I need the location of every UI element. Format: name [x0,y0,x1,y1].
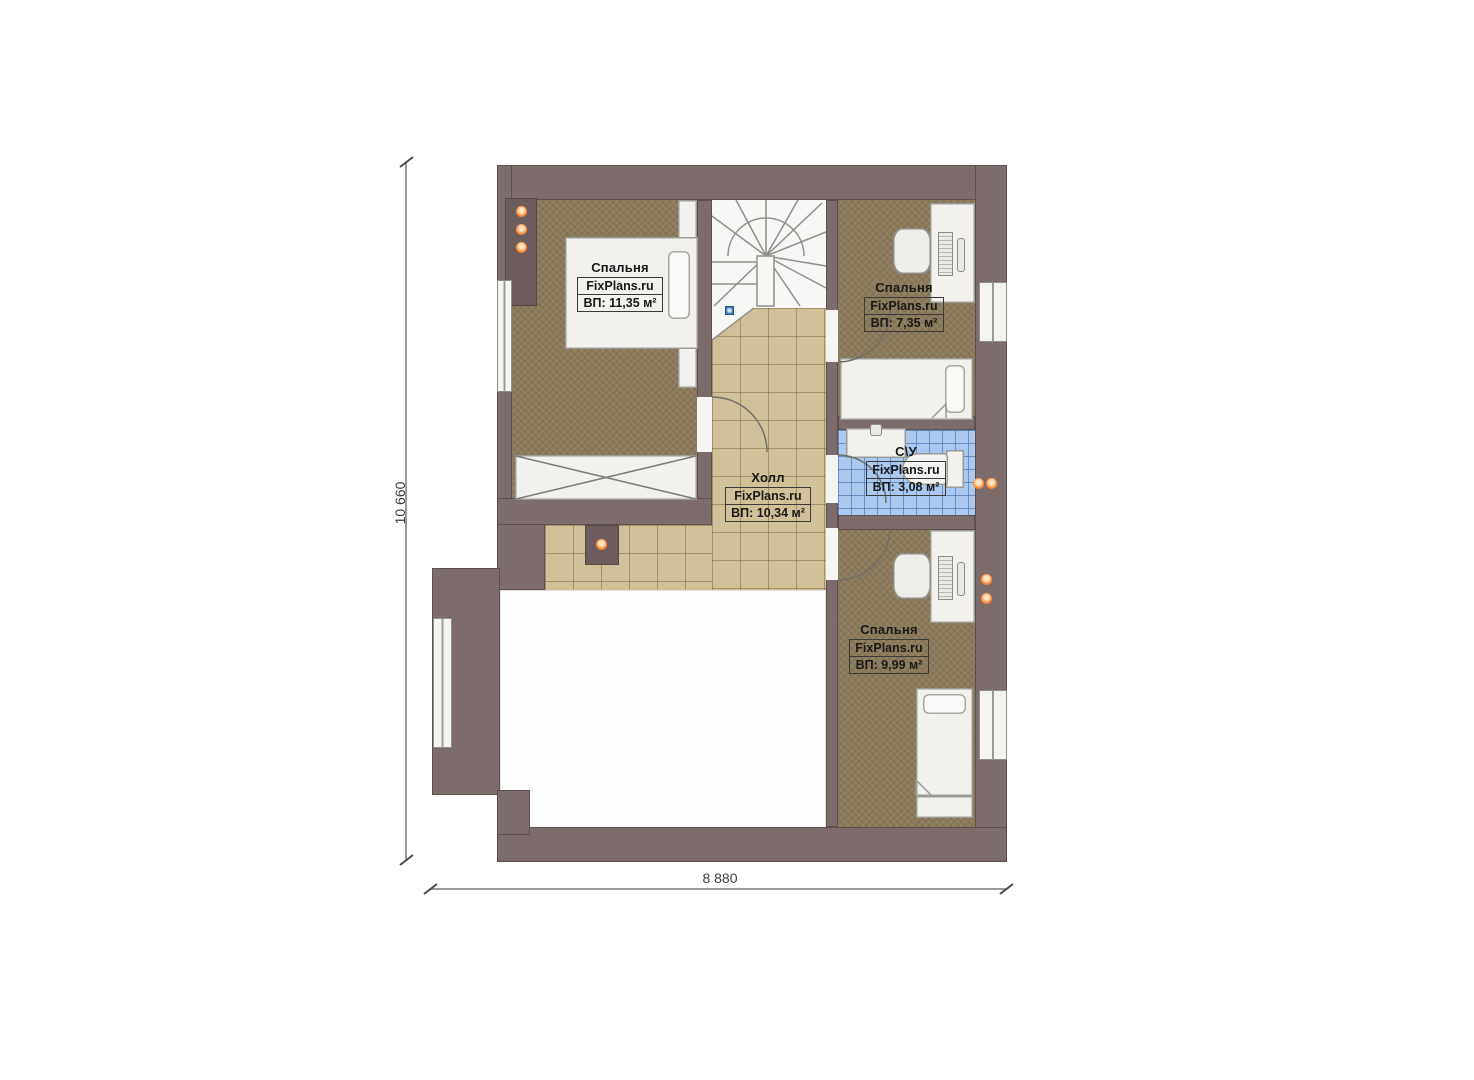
dimension-horizontal-label: 8 880 [678,870,762,886]
room-brand: FixPlans.ru [850,640,927,656]
door-opening-bedroom2 [826,310,838,362]
room-name: Спальня [860,622,918,637]
hall-floor-strip [712,308,826,590]
chair-bedroom2 [893,228,931,274]
room-info-box: FixPlans.ru ВП: 7,35 м² [864,297,943,332]
open-attic-area [500,590,826,830]
room-area: ВП: 7,35 м² [865,314,942,331]
wall-light [981,574,992,585]
bed-bedroom3-footboard [916,796,973,818]
room-label-bathroom: С\У FixPlans.ru ВП: 3,08 м² [862,444,950,496]
chair-bedroom3 [893,553,931,599]
room-name: С\У [895,444,917,459]
room-label-bedroom-top-right: Спальня FixPlans.ru ВП: 7,35 м² [860,280,948,332]
monitor-bedroom3 [957,562,965,596]
wall-bedroom1-hall [697,200,712,500]
monitor-bedroom2 [957,238,965,272]
room-area: ВП: 3,08 м² [867,478,944,495]
hall-floor-band [545,525,712,590]
staircase-floor [712,200,826,308]
chimney-light [596,539,607,550]
room-info-box: FixPlans.ru ВП: 10,34 м² [725,487,811,522]
window-left-lower [433,618,452,748]
room-brand: FixPlans.ru [867,462,944,478]
computer-bedroom3 [938,556,953,600]
wall-light [516,242,527,253]
room-label-hall: Холл FixPlans.ru ВП: 10,34 м² [722,470,814,522]
room-name: Спальня [591,260,649,275]
window-right-lower [979,690,1007,760]
room-info-box: FixPlans.ru ВП: 11,35 м² [577,277,662,312]
room-brand: FixPlans.ru [726,488,810,504]
door-opening-bedroom1 [697,397,712,452]
pillow [923,694,966,714]
dimension-vertical-label: 10 660 [392,471,408,535]
room-name: Холл [751,470,784,485]
wall-below-bedroom1 [497,498,712,525]
room-brand: FixPlans.ru [578,278,661,294]
room-info-box: FixPlans.ru ВП: 9,99 м² [849,639,928,674]
floor-plan-canvas: Спальня FixPlans.ru ВП: 11,35 м² Спальня… [0,0,1474,1080]
wall-bottom [497,827,1007,862]
door-opening-bedroom3 [826,528,838,580]
computer-bedroom2 [938,232,953,276]
wall-top [497,165,1007,200]
room-name: Спальня [875,280,933,295]
room-area: ВП: 10,34 м² [726,504,810,521]
tap [870,424,882,436]
room-brand: FixPlans.ru [865,298,942,314]
wall-light [516,224,527,235]
window-left-upper [497,280,512,392]
wall-light [986,478,997,489]
room-label-bedroom-bottom: Спальня FixPlans.ru ВП: 9,99 м² [844,622,934,674]
wall-light [973,478,984,489]
wall-light [981,593,992,604]
room-area: ВП: 9,99 м² [850,656,927,673]
window-right-upper [979,282,1007,342]
wall-bath-bedroom3 [838,515,975,530]
section-marker-blue [725,306,734,315]
wall-light [516,206,527,217]
door-opening-bathroom [826,455,838,503]
wall-protrusion-link [497,790,530,835]
bed-bedroom2 [840,358,973,420]
pillow [945,365,965,413]
room-label-bedroom-top-left: Спальня FixPlans.ru ВП: 11,35 м² [568,260,672,312]
room-info-box: FixPlans.ru ВП: 3,08 м² [866,461,945,496]
wall-hall-right [826,200,838,827]
closet-bedroom1 [515,455,697,500]
bed-bedroom3 [916,688,973,796]
room-area: ВП: 11,35 м² [578,294,661,311]
